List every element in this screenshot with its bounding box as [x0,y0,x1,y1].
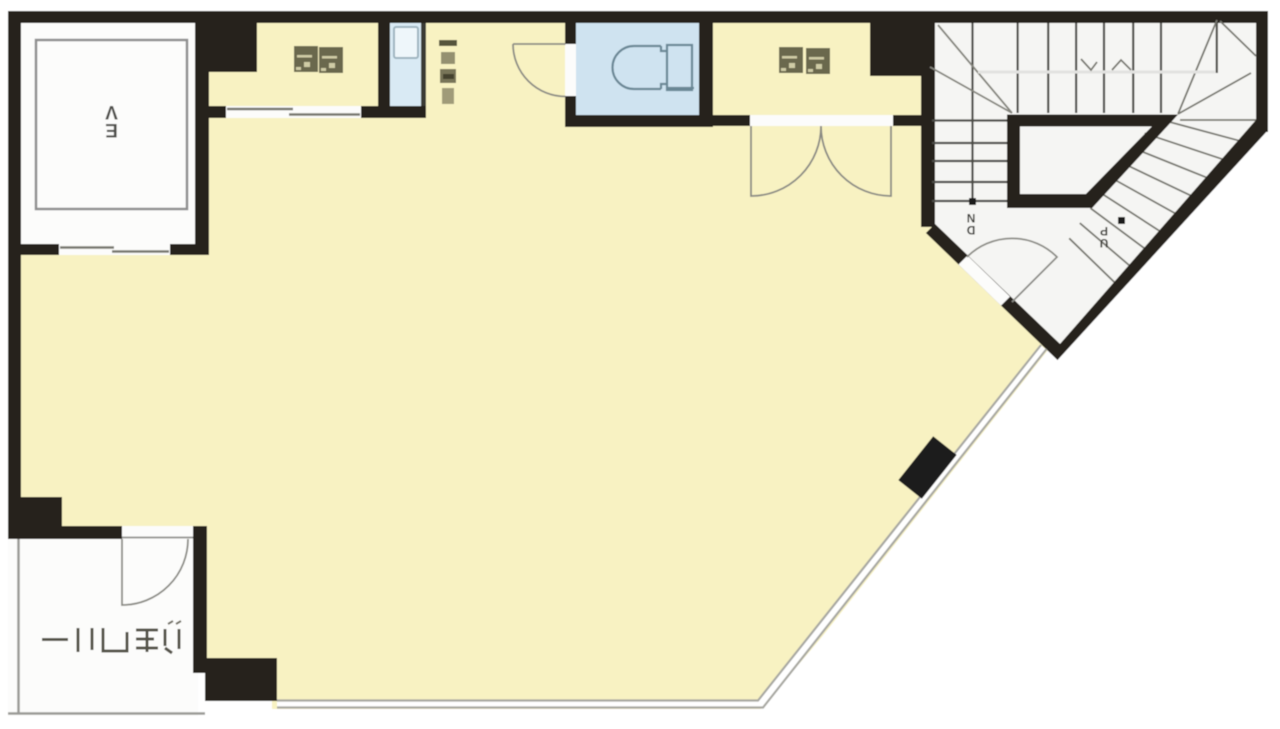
svg-text:N: N [967,211,976,225]
svg-text:V: V [105,101,118,122]
svg-text:P: P [1100,224,1108,238]
